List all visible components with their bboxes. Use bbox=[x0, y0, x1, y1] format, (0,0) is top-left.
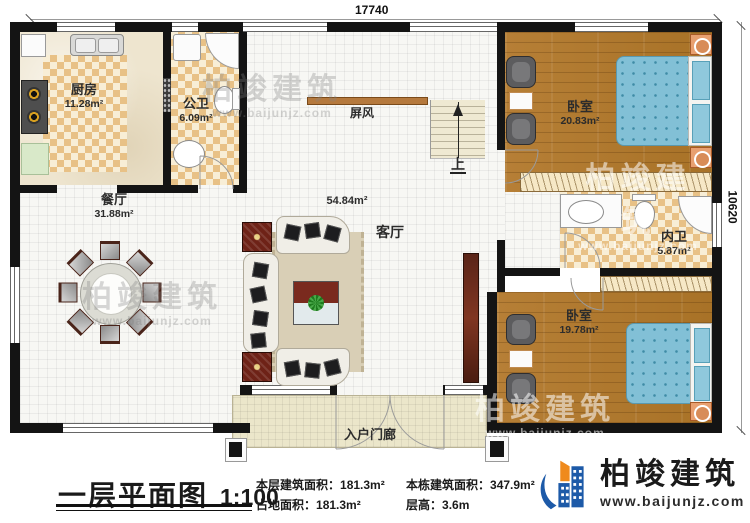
plan-title-block: 一层平面图1:100 bbox=[58, 474, 279, 514]
stat-floor-area: 本层建筑面积：181.3m² bbox=[256, 476, 385, 493]
floorplan-page: { "plan": { "dimensions": { "top": "1774… bbox=[0, 0, 750, 523]
door-arcs bbox=[0, 0, 750, 462]
logo-orange-block bbox=[560, 461, 569, 482]
title-underline-thin bbox=[56, 510, 252, 511]
logo-website: www.baijunjz.com bbox=[600, 493, 745, 509]
stat-footprint-area: 占地面积：181.3m² bbox=[256, 496, 361, 513]
room-label-dining: 餐厅 31.88m² bbox=[94, 193, 133, 220]
stairs-up-label: 上 bbox=[450, 156, 466, 172]
room-label-porch: 入户门廊 bbox=[344, 428, 396, 443]
room-label-bedroom-top: 卧室 20.83m² bbox=[560, 100, 599, 127]
logo-tower bbox=[571, 466, 583, 507]
floorplan-drawing: 17740 10620 bbox=[0, 0, 750, 462]
room-label-inner-bath: 内卫 5.87m² bbox=[657, 230, 690, 257]
logo-building-icon bbox=[536, 455, 592, 513]
logo-text-block: 柏竣建筑 www.baijunjz.com bbox=[600, 460, 745, 509]
stat-building-area: 本栋建筑面积：347.9m² bbox=[406, 476, 535, 493]
logo-swoosh bbox=[541, 474, 557, 509]
room-label-kitchen: 厨房 11.28m² bbox=[65, 83, 104, 110]
room-label-living: 客厅 bbox=[376, 224, 404, 240]
company-logo: 柏竣建筑 www.baijunjz.com bbox=[536, 455, 745, 513]
room-label-living-area: 54.84m² bbox=[327, 195, 368, 208]
room-label-public-bath: 公卫 6.09m² bbox=[179, 97, 212, 124]
title-underline-thick bbox=[56, 504, 252, 507]
logo-company-name: 柏竣建筑 bbox=[600, 460, 745, 490]
room-label-screen: 屏风 bbox=[350, 107, 374, 121]
room-label-bedroom-bottom: 卧室 19.78m² bbox=[559, 309, 598, 336]
door-arc-group bbox=[200, 150, 603, 449]
stat-floor-height: 层高：3.6m bbox=[406, 496, 469, 513]
